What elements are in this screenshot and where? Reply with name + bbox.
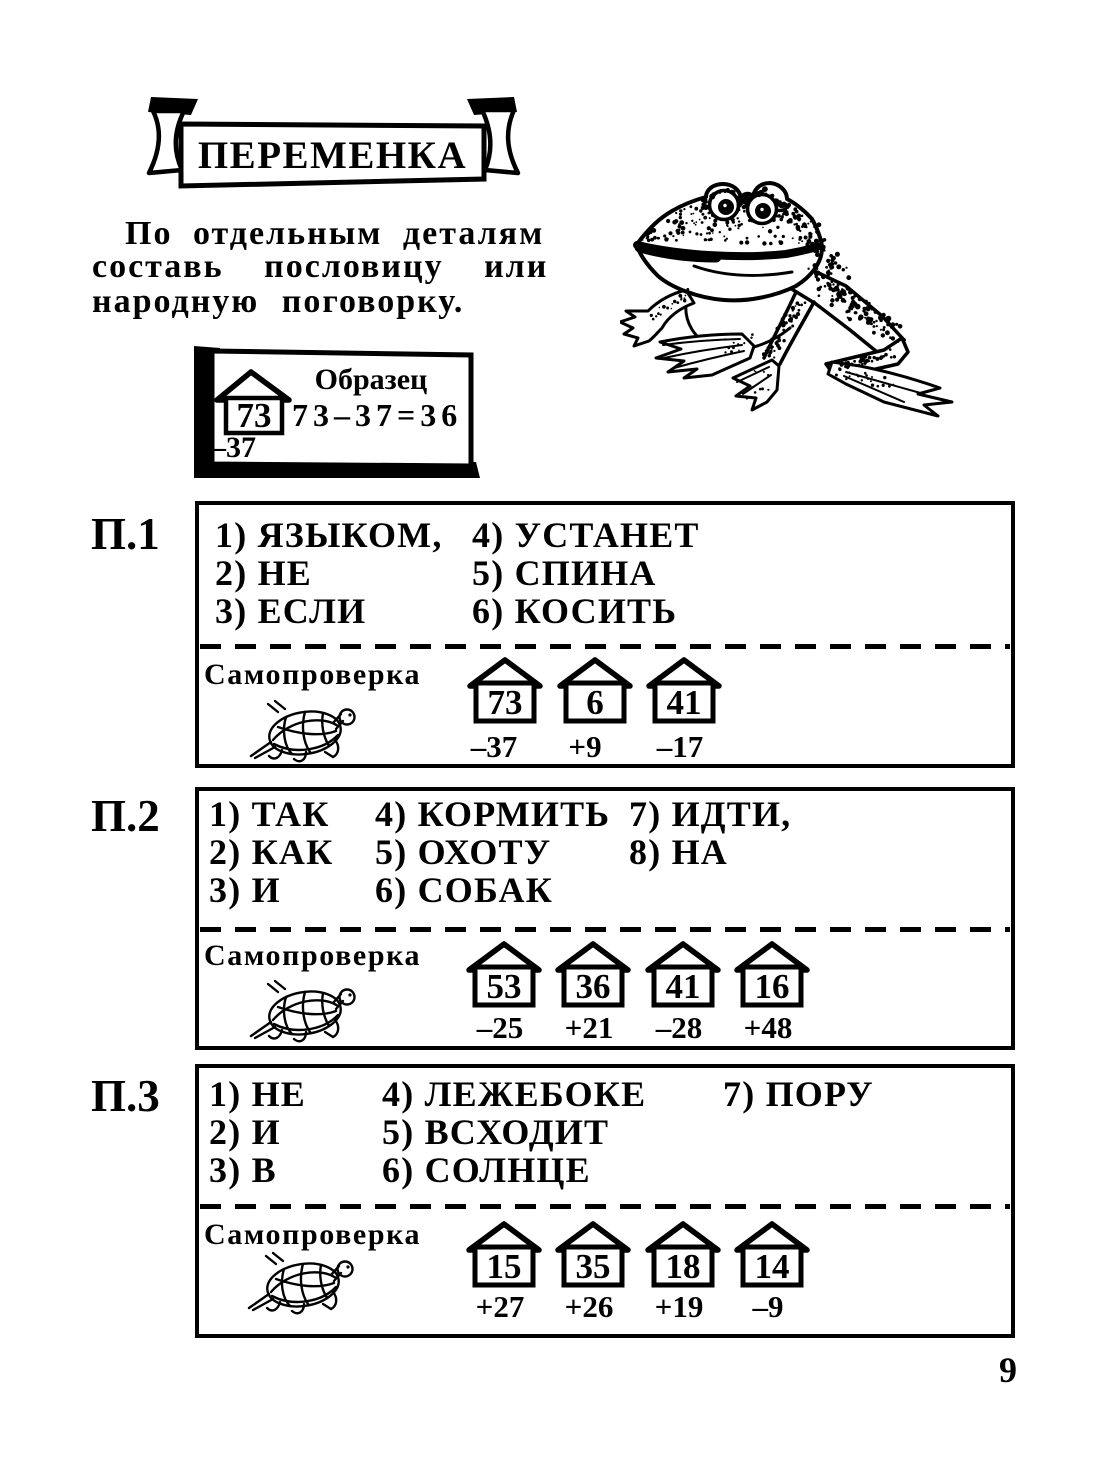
svg-text:35: 35 — [576, 1247, 611, 1286]
svg-text:36: 36 — [576, 967, 611, 1006]
svg-text:53: 53 — [487, 967, 522, 1006]
svg-text:73–37=36: 73–37=36 — [292, 397, 462, 433]
svg-text:41: 41 — [667, 683, 702, 722]
svg-text:16: 16 — [755, 967, 790, 1006]
svg-text:14: 14 — [755, 1247, 790, 1286]
svg-text:–17: –17 — [656, 729, 704, 762]
svg-text:+9: +9 — [568, 729, 601, 762]
svg-text:+27: +27 — [476, 1289, 525, 1324]
svg-text:41: 41 — [666, 967, 701, 1006]
svg-text:+48: +48 — [744, 1010, 793, 1045]
svg-text:73: 73 — [488, 683, 523, 722]
svg-text:–37: –37 — [210, 431, 256, 464]
svg-text:6: 6 — [586, 683, 604, 722]
svg-text:Образец: Образец — [315, 363, 428, 396]
svg-text:73: 73 — [237, 396, 272, 435]
svg-text:–37: –37 — [470, 729, 518, 762]
svg-text:–9: –9 — [752, 1289, 784, 1324]
svg-text:+19: +19 — [655, 1289, 704, 1324]
svg-text:+26: +26 — [565, 1289, 614, 1324]
svg-text:18: 18 — [666, 1247, 701, 1286]
svg-text:15: 15 — [487, 1247, 522, 1286]
svg-text:+21: +21 — [565, 1010, 614, 1045]
svg-text:–28: –28 — [655, 1010, 703, 1045]
svg-text:–25: –25 — [476, 1010, 524, 1045]
